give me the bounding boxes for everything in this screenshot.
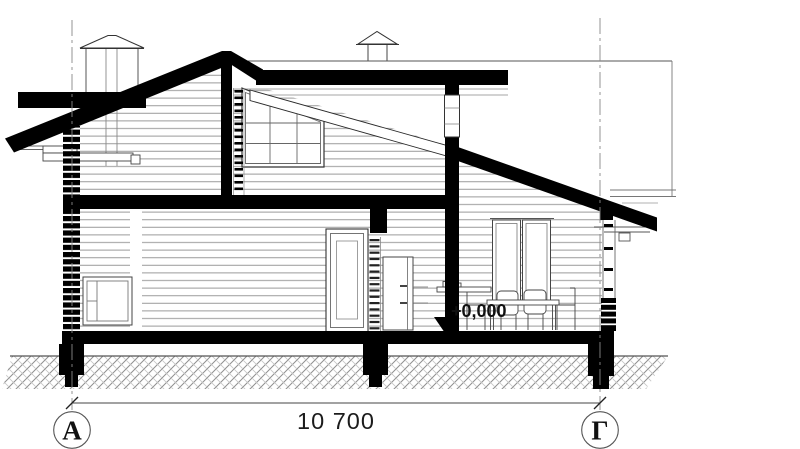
architectural-section-drawing: +0,000 10 700 А Г [0,0,800,449]
elevation-label: +0,000 [451,301,507,321]
pier-left [59,344,84,375]
dimension-label: 10 700 [297,408,375,434]
ground [2,356,668,389]
center-wall-top [445,85,459,95]
left-soffit-board [43,153,133,161]
fireplace [83,277,132,325]
flat-roof-beam [256,70,508,85]
interior-wall [221,56,232,196]
interfloor-slab [63,195,459,209]
interior-door [326,229,368,332]
pier-center [363,344,388,375]
stair-treads [370,239,380,329]
wall-stub-over-stairs [370,209,387,233]
right-fascia-board [619,233,630,241]
left-soffit-board [131,155,140,164]
center-wall-window [445,95,460,137]
section-svg: +0,000 10 700 А Г [0,0,800,449]
ground-hatch [2,356,668,389]
ground-floor-slab [62,331,611,344]
axis-marker-label-right: Г [591,416,608,446]
left-exterior-wall-logs [63,126,80,331]
axis-marker-label-left: А [62,416,82,446]
pier-right [588,331,614,376]
